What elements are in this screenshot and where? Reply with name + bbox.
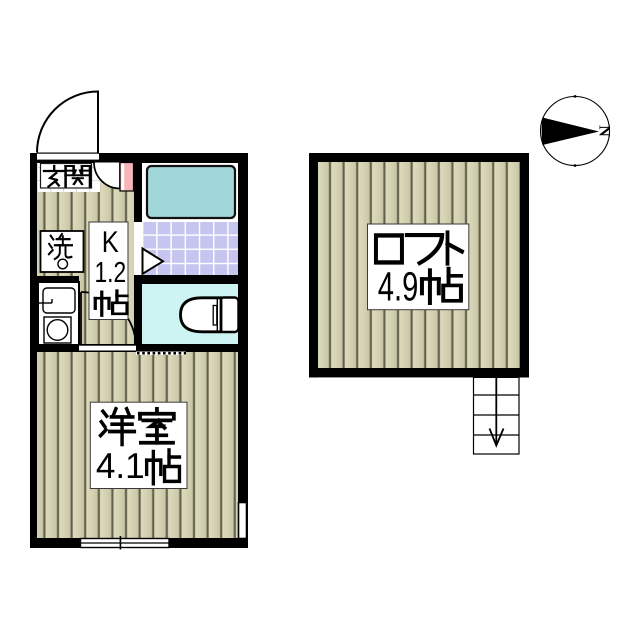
svg-text:4.1: 4.1 bbox=[96, 445, 145, 486]
svg-text:N: N bbox=[596, 125, 613, 137]
svg-text:4.9: 4.9 bbox=[378, 264, 419, 310]
svg-text:K: K bbox=[102, 226, 119, 259]
svg-text:1.2: 1.2 bbox=[94, 257, 126, 289]
